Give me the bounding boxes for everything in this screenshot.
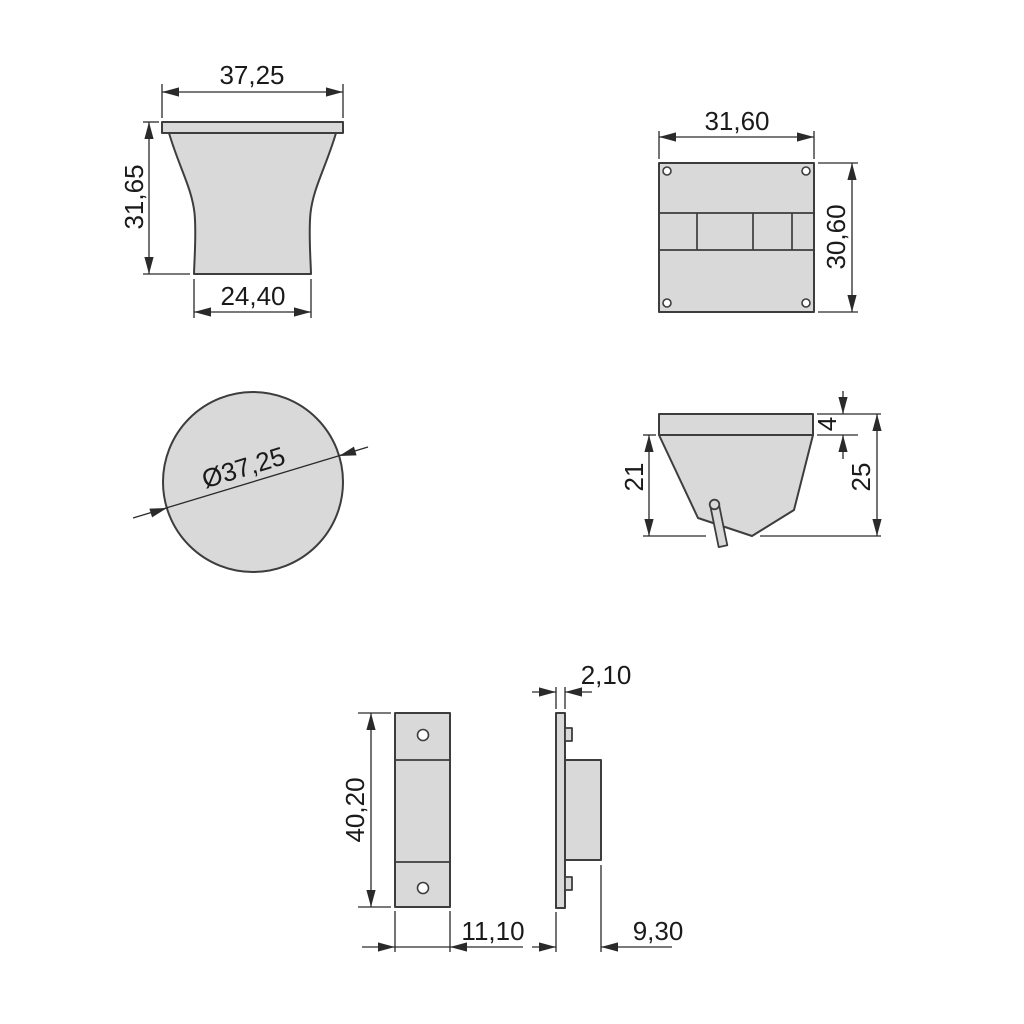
- arrowhead-icon: [294, 307, 311, 316]
- dimension-plate-width: 31,60: [659, 106, 814, 159]
- technical-drawing-canvas: 37,25 31,65 24,40: [0, 0, 1024, 1024]
- bracket-outline: [395, 713, 450, 907]
- dim-label-plate-height: 30,60: [821, 204, 851, 269]
- dim-label-bracket-width: 11,10: [461, 916, 524, 946]
- bracket-side-view: 2,10 9,30: [532, 660, 683, 952]
- knob-top-view: Ø37,25: [133, 392, 368, 572]
- arrowhead-icon: [838, 435, 847, 452]
- arrowhead-icon: [366, 713, 375, 730]
- dim-label-flange-thickness: 4: [812, 417, 842, 431]
- bracket-front-view: 40,20 11,10: [340, 713, 525, 952]
- arrowhead-icon: [847, 163, 856, 180]
- knob-body-outline: [169, 133, 336, 274]
- dimension-plate-height: 30,60: [818, 163, 858, 312]
- dim-label-bottom-width: 24,40: [220, 281, 285, 311]
- technical-drawing-page: 37,25 31,65 24,40: [0, 0, 1024, 1024]
- knob-cap-outline: [162, 122, 343, 133]
- plate-outline: [659, 163, 814, 312]
- dimension-bracket-height: 40,20: [340, 713, 391, 907]
- dim-label-bracket-height: 40,20: [340, 777, 370, 842]
- arrowhead-icon: [872, 519, 881, 536]
- back-plate-view: 31,60 30,60: [659, 106, 858, 312]
- arrowhead-icon: [644, 519, 653, 536]
- arrowhead-icon: [872, 414, 881, 431]
- hook-side-view: 21 4 25: [619, 391, 882, 547]
- arrowhead-icon: [644, 435, 653, 452]
- arrowhead-icon: [797, 132, 814, 141]
- arrowhead-icon: [144, 257, 153, 274]
- bracket-plate-outline: [556, 713, 565, 908]
- arrowhead-icon: [539, 942, 556, 951]
- dim-label-top-width: 37,25: [219, 60, 284, 90]
- arrowhead-icon: [326, 87, 343, 96]
- screw-hole: [418, 730, 429, 741]
- arrowhead-icon: [565, 687, 582, 696]
- dim-label-height: 31,65: [119, 164, 149, 229]
- arrowhead-icon: [539, 687, 556, 696]
- dimension-top-width: 37,25: [162, 60, 343, 118]
- arrowhead-icon: [601, 942, 618, 951]
- dimension-total-depth: 25: [846, 414, 882, 536]
- dim-label-plate-thickness: 2,10: [581, 660, 632, 690]
- dimension-bracket-width: 11,10: [362, 911, 525, 952]
- arrowhead-icon: [838, 397, 847, 414]
- arrowhead-icon: [162, 87, 179, 96]
- screw-hole: [663, 299, 671, 307]
- screw-hole: [802, 167, 810, 175]
- dimension-flange-thickness: 4: [812, 391, 881, 459]
- arrowhead-icon: [366, 890, 375, 907]
- hook-flange-outline: [659, 414, 813, 435]
- hook-pin-top: [710, 500, 720, 510]
- dimension-bracket-depth: 9,30: [532, 865, 683, 952]
- bracket-block-outline: [565, 760, 601, 860]
- bracket-clip-tab: [565, 877, 572, 890]
- dim-label-total-depth: 25: [846, 463, 876, 492]
- dimension-bottom-width: 24,40: [194, 279, 311, 318]
- arrowhead-icon: [144, 122, 153, 139]
- arrowhead-icon: [378, 942, 395, 951]
- dim-label-plate-width: 31,60: [704, 106, 769, 136]
- bracket-clip-tab: [565, 728, 572, 741]
- arrowhead-icon: [847, 295, 856, 312]
- dim-label-body-depth: 21: [619, 463, 649, 492]
- screw-hole: [802, 299, 810, 307]
- arrowhead-icon: [659, 132, 676, 141]
- hook-body-outline: [659, 435, 813, 536]
- screw-hole: [418, 883, 429, 894]
- arrowhead-icon: [194, 307, 211, 316]
- dim-label-bracket-depth: 9,30: [633, 916, 684, 946]
- dimension-plate-thickness: 2,10: [532, 660, 631, 709]
- screw-hole: [663, 167, 671, 175]
- knob-front-view: 37,25 31,65 24,40: [119, 60, 343, 318]
